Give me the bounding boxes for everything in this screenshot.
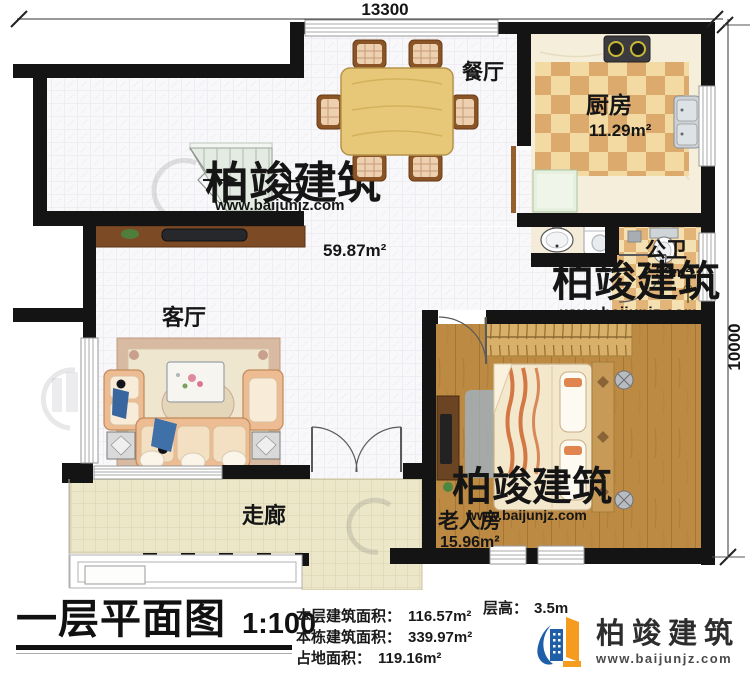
side-table-left — [107, 432, 135, 459]
bedside-stool — [615, 371, 633, 389]
window-top — [305, 20, 498, 36]
dining-chair — [409, 40, 442, 68]
kitchen-sink — [674, 96, 700, 148]
dining-room-label: 餐厅 — [462, 60, 504, 84]
watermark-site-text: www.baijunjz.com — [559, 305, 698, 322]
window-kitchen-right — [699, 86, 715, 166]
window-living-south — [94, 466, 222, 479]
stove — [604, 36, 650, 62]
bathroom-area: 2.59m² — [643, 264, 691, 281]
title-block: 一层平面图 1:100 本层建筑面积：116.57m² 本栋建筑面积：339.9… — [0, 590, 750, 688]
stat-label: 本栋建筑面积： — [296, 629, 401, 646]
stat-floor-area: 本层建筑面积：116.57m² — [296, 606, 472, 627]
dining-chair — [317, 95, 343, 129]
stat-land-area: 占地面积：119.16m² — [296, 648, 472, 669]
tv-cabinet — [95, 226, 305, 247]
kitchen-area: 11.29m² — [589, 121, 652, 140]
watermark-brand-text: 柏竣建筑 — [452, 465, 612, 509]
monitor — [440, 414, 452, 464]
watermark-brand-text: 柏竣建筑 — [552, 258, 720, 305]
bathroom-label: 公卫 — [645, 239, 687, 262]
brand-text-group: 柏竣建筑 www.baijunjz.com — [596, 618, 740, 666]
stat-label: 占地面积： — [296, 650, 371, 667]
stat-value: 116.57m² — [408, 608, 471, 625]
stairs-up-label: 上 — [279, 171, 302, 197]
brand-logo: 柏竣建筑 www.baijunjz.com — [536, 612, 746, 672]
title-underline-thin — [16, 653, 292, 654]
plan-title: 一层平面图 — [16, 596, 226, 642]
tv — [162, 229, 247, 241]
living-room-label: 客厅 — [162, 305, 206, 330]
stat-value: 119.16m² — [378, 650, 441, 667]
dimension-right-value: 10000 — [725, 323, 744, 370]
watermark-right: 柏竣建筑 www.baijunjz.com — [552, 258, 720, 322]
window-bedroom-south-2 — [538, 546, 584, 564]
brand-website: www.baijunjz.com — [596, 651, 740, 666]
stat-label: 本层建筑面积： — [296, 608, 401, 625]
corridor-label: 走廊 — [242, 503, 286, 528]
plant — [121, 229, 139, 239]
stat-building-area: 本栋建筑面积：339.97m² — [296, 627, 472, 648]
dining-chair — [353, 153, 386, 181]
bedroom-label: 老人房 — [438, 509, 501, 533]
bedside-stool — [615, 491, 633, 509]
open-plan-area: 59.87m² — [323, 241, 387, 260]
side-table-right — [252, 432, 280, 459]
watermark-left — [43, 370, 78, 428]
brand-logo-icon — [536, 612, 588, 672]
dining-table — [341, 68, 453, 155]
dining-chair — [452, 95, 478, 129]
shower-drain — [628, 231, 641, 242]
dimension-top-value: 13300 — [361, 0, 408, 19]
area-stats: 本层建筑面积：116.57m² 本栋建筑面积：339.97m² 占地面积：119… — [296, 606, 472, 669]
dining-chair — [353, 40, 386, 68]
bedroom-area: 15.96m² — [440, 534, 500, 551]
kitchen-door-leaf — [511, 146, 516, 213]
wash-basin — [541, 227, 573, 252]
kitchen-label: 厨房 — [586, 92, 632, 118]
coffee-table — [167, 362, 224, 402]
plan-title-group: 一层平面图 1:100 — [16, 596, 292, 654]
dining-chair — [409, 153, 442, 181]
stat-value: 339.97m² — [408, 629, 472, 646]
window-living-left — [81, 338, 98, 463]
floor-height-label: 层高： — [483, 600, 528, 617]
title-underline — [16, 645, 292, 650]
floor-plan: 柏竣建筑 www.baijunjz.com — [0, 0, 750, 590]
fridge — [533, 170, 577, 212]
brand-name: 柏竣建筑 — [596, 618, 740, 650]
floor-plan-page: 柏竣建筑 www.baijunjz.com — [0, 0, 750, 688]
